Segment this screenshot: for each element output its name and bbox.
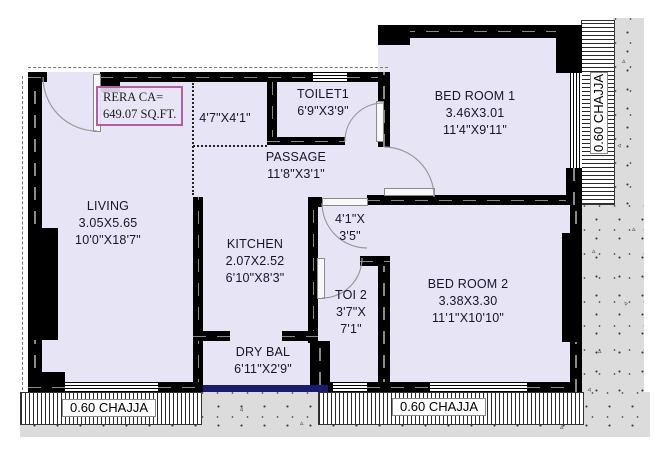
window-toi2 <box>333 382 367 392</box>
wall-kitchen-bottom-right <box>282 331 318 341</box>
chajja-label-bottom-left: 0.60 CHAJJA <box>62 399 156 417</box>
wall-top-stub <box>28 72 47 82</box>
wall-top-main <box>100 72 313 82</box>
drybal-name: DRY BAL <box>202 344 324 361</box>
ground-texture-right-lower <box>582 205 644 392</box>
bedroom1-dim-m: 3.46X3.01 <box>400 105 550 122</box>
dashed-line-left <box>22 76 23 390</box>
rera-line1: RERA CA= <box>103 89 176 106</box>
passage-name: PASSAGE <box>236 149 356 166</box>
room-bedroom2-label: BED ROOM 2 3.38X3.30 11'1"X10'10" <box>393 276 543 327</box>
floor-plan: ▵ ▵ ▵ ▵ ▵ ▵ ▵ ▵ ▵ ▵ ▵ ▵ <box>0 0 654 463</box>
window-living <box>65 382 158 392</box>
dashed-line-top <box>28 67 388 68</box>
speck-icon: ▵ <box>598 348 602 355</box>
wall-lobby-toi2-stub <box>360 256 390 266</box>
speck-icon: ▵ <box>622 58 626 65</box>
foyer-dotted-boundary-h <box>193 145 267 147</box>
bedroom2-dim-m: 3.38X3.30 <box>393 293 543 310</box>
door-leaf-toilet1 <box>376 101 384 142</box>
window-bedroom2 <box>430 382 527 392</box>
room-toilet1-label: TOILET1 6'9"X3'9" <box>273 86 373 120</box>
dry-balcony-edge <box>199 385 330 392</box>
toi2-dim-2: 7'1" <box>319 321 383 338</box>
toi2-name: TOI 2 <box>319 287 383 304</box>
wall-toilet1-bottom <box>267 137 345 145</box>
bedroom2-name: BED ROOM 2 <box>393 276 543 293</box>
kitchen-name: KITCHEN <box>194 236 316 253</box>
toilet1-name: TOILET1 <box>273 86 373 103</box>
rera-carpet-area-box: RERA CA= 649.07 SQ.FT. <box>96 86 183 126</box>
speck-icon: ▵ <box>632 226 636 233</box>
room-toi2-label: TOI 2 3'7"X 7'1" <box>319 287 383 338</box>
wall-bedroom1-top-corner <box>378 25 410 45</box>
room-kitchen-label: KITCHEN 2.07X2.52 6'10"X8'3" <box>194 236 316 287</box>
rera-line2: 649.07 SQ.FT. <box>103 106 176 123</box>
lobby-dim-label: 4'1"X 3'5" <box>318 211 382 245</box>
speck-icon: ▵ <box>560 424 564 431</box>
bedroom2-dim-ft: 11'1"X10'10" <box>393 310 543 327</box>
drybal-dim-ft: 6'11"X2'9" <box>202 361 324 378</box>
speck-icon: ▵ <box>592 248 596 255</box>
toilet1-dim-ft: 6'9"X3'9" <box>273 103 373 120</box>
foyer-dotted-boundary-v <box>192 83 194 195</box>
wall-right-mid <box>566 168 582 205</box>
wall-bedroom-divider <box>367 195 582 205</box>
speck-icon: ▵ <box>300 420 304 427</box>
window-toilet1 <box>313 72 347 82</box>
ground-texture-right-upper <box>613 18 644 205</box>
wall-right-top-corner <box>556 25 582 73</box>
bedroom1-name: BED ROOM 1 <box>400 88 550 105</box>
wall-kitchen-right-stub <box>308 197 322 207</box>
floor-bedroom-wing <box>378 25 582 392</box>
bedroom1-dim-ft: 11'4"X9'11" <box>400 122 550 139</box>
wall-right-column <box>562 233 582 342</box>
window-bedroom1 <box>570 73 582 168</box>
living-dim-ft: 10'0"X18'7" <box>48 232 168 249</box>
kitchen-dim-ft: 6'10"X8'3" <box>194 270 316 287</box>
door-leaf-bedroom1 <box>384 188 435 196</box>
wall-kitchen-bottom-left <box>193 331 230 341</box>
wall-bottom-mid <box>367 382 430 392</box>
passage-dim-ft: 11'8"X3'1" <box>236 166 356 183</box>
room-passage-label: PASSAGE 11'8"X3'1" <box>236 149 356 183</box>
room-living-label: LIVING 3.05X5.65 10'0"X18'7" <box>48 198 168 249</box>
lobby-dim-2: 3'5" <box>318 228 382 245</box>
wall-bottom-living-right <box>158 382 203 392</box>
room-bedroom1-label: BED ROOM 1 3.46X3.01 11'4"X9'11" <box>400 88 550 139</box>
toi2-dim-1: 3'7"X <box>319 304 383 321</box>
foyer-dim-label: 4'7"X4'1" <box>183 110 267 127</box>
wall-bottom-living-left <box>28 382 65 392</box>
foyer-dim-ft: 4'7"X4'1" <box>183 110 267 127</box>
living-dim-m: 3.05X5.65 <box>48 215 168 232</box>
kitchen-dim-m: 2.07X2.52 <box>194 253 316 270</box>
living-name: LIVING <box>48 198 168 215</box>
chajja-label-bottom-right: 0.60 CHAJJA <box>392 398 486 416</box>
chajja-label-right: 0.60 CHAJJA <box>590 72 608 154</box>
room-drybal-label: DRY BAL 6'11"X2'9" <box>202 344 324 378</box>
door-leaf-bedroom2 <box>322 198 368 206</box>
lobby-dim-1: 4'1"X <box>318 211 382 228</box>
